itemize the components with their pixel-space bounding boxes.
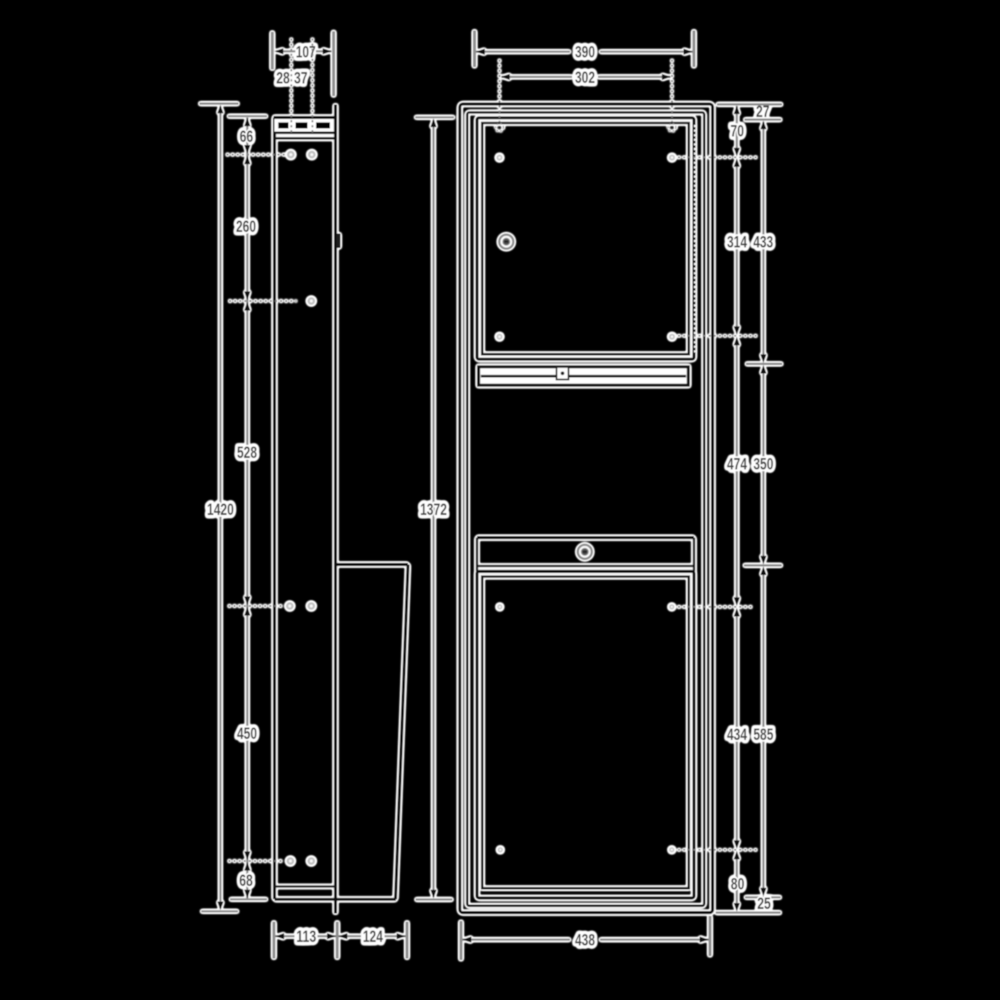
svg-text:585: 585	[753, 726, 773, 744]
svg-text:260: 260	[236, 218, 256, 236]
svg-text:528: 528	[237, 444, 257, 462]
svg-text:28: 28	[276, 70, 290, 88]
svg-text:450: 450	[237, 725, 257, 743]
svg-text:37: 37	[294, 70, 308, 88]
svg-text:1420: 1420	[207, 501, 234, 519]
svg-text:80: 80	[731, 875, 745, 893]
svg-text:1372: 1372	[420, 501, 447, 519]
svg-text:314: 314	[727, 234, 748, 252]
svg-text:124: 124	[363, 928, 384, 946]
svg-text:113: 113	[296, 928, 316, 946]
svg-text:474: 474	[727, 455, 748, 473]
svg-text:350: 350	[753, 455, 773, 473]
svg-text:434: 434	[727, 726, 748, 744]
svg-text:438: 438	[575, 932, 595, 950]
svg-text:68: 68	[239, 872, 253, 890]
svg-text:433: 433	[753, 234, 773, 252]
svg-text:107: 107	[296, 43, 316, 61]
svg-text:66: 66	[240, 128, 254, 146]
svg-text:390: 390	[575, 44, 595, 62]
svg-text:25: 25	[757, 895, 771, 913]
svg-text:302: 302	[575, 69, 595, 87]
svg-text:70: 70	[730, 123, 744, 141]
svg-text:27: 27	[756, 103, 770, 121]
